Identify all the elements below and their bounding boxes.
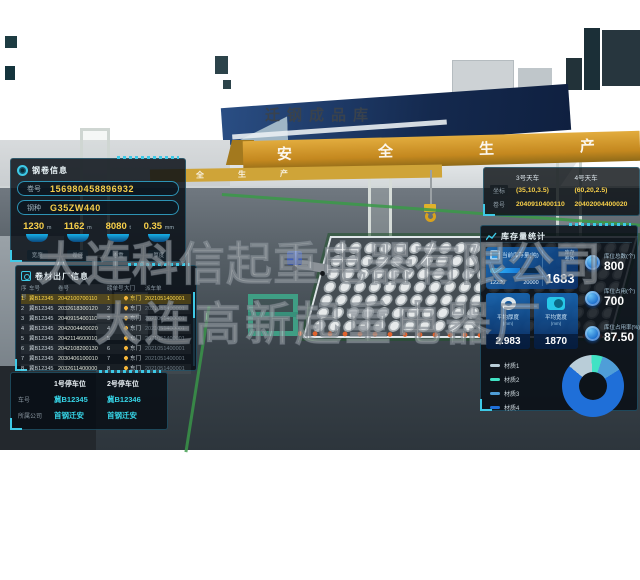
- avg-width-card[interactable]: 平均宽度 (mm) 1870: [534, 293, 578, 349]
- col-header: 车号: [29, 285, 58, 294]
- shipment-panel: 卷材出厂信息 序号 车号 卷号 磅单号 大门 派车单 1 冀B12345 204…: [15, 265, 197, 371]
- coil-icon: [17, 165, 28, 176]
- crane-4-coil: 20402004400020: [575, 201, 634, 208]
- legend-swatch: [490, 378, 500, 381]
- inventory-title: 库存量统计: [501, 231, 546, 242]
- table-row[interactable]: 1 冀B12345 2042100700110 1 东门 20210514000…: [21, 294, 191, 304]
- shipment-table: 序号 车号 卷号 磅单号 大门 派车单 1 冀B12345 2042100700…: [21, 285, 191, 374]
- legend-swatch: [490, 364, 500, 367]
- crane-hook-icon: [425, 211, 436, 222]
- avg-thickness-label: 平均厚度: [497, 313, 519, 321]
- legend-swatch: [490, 392, 500, 395]
- coil-stat-weight: 8080 t 卷重: [98, 221, 139, 262]
- stat-value: 8080: [106, 221, 127, 232]
- coil-label: 卷号: [490, 199, 508, 210]
- legend-swatch: [490, 406, 500, 409]
- table-row[interactable]: 4 冀B12345 2042004400020 4 东门 20210514000…: [21, 324, 191, 334]
- crane-3-name: 3号天车: [516, 172, 575, 182]
- crane-hook-cable: [430, 170, 432, 208]
- company-label: 所属公司: [18, 411, 54, 420]
- col-header: 大门: [124, 285, 145, 294]
- parking-spot-2-title: 2号停车位: [107, 379, 160, 389]
- gate-pin-icon: [123, 295, 129, 301]
- coil-number-label: 卷号: [27, 184, 41, 194]
- stock-icon: [490, 250, 500, 260]
- spot-1-plate: 冀B12345: [54, 394, 107, 405]
- table-row[interactable]: 3 冀B12345 2040915400110 3 东门 20210514000…: [21, 314, 191, 324]
- slot-sphere-icon: [585, 255, 600, 270]
- coord-label: 坐标: [490, 185, 508, 196]
- stock-current: 12230: [490, 280, 505, 286]
- coil-count-label-2: 卷数: [565, 256, 575, 262]
- coil-number-value: 156980458896932: [50, 184, 134, 194]
- coil-stats: 1230 m 宽度 1162 m 卷径 8080 t 卷重 0.35 mm: [17, 221, 179, 262]
- gauge-arc-icon: [67, 234, 89, 242]
- stat-label: 厚度: [148, 250, 169, 260]
- steel-grade-field[interactable]: 钢种 G35ZW440: [17, 200, 179, 215]
- truck-wheel: [320, 271, 325, 276]
- shipment-header: 卷材出厂信息: [21, 269, 191, 283]
- legend-item[interactable]: 材质3: [490, 389, 548, 398]
- spot-1-company: 首钢迁安: [54, 410, 107, 421]
- coil-info-panel: 钢卷信息 卷号 156980458896932 钢种 G35ZW440 1230…: [10, 158, 186, 262]
- coil-stat-width: 1230 m 宽度: [17, 221, 58, 262]
- crane-3-coord: (35,10,3.5): [516, 187, 575, 194]
- storage-rack-shelf: [248, 312, 298, 317]
- gauge-arc-icon: [26, 234, 48, 242]
- stock-progress-bar: [490, 268, 539, 273]
- steel-grade-label: 钢种: [27, 203, 41, 213]
- stock-max: 20000: [523, 280, 538, 286]
- stat-unit: t: [129, 225, 131, 231]
- shipment-table-header: 序号 车号 卷号 磅单号 大门 派车单: [21, 285, 191, 294]
- table-row[interactable]: 6 冀B12345 2042108200130 6 东门 20210514000…: [21, 344, 191, 354]
- material-donut: [562, 355, 624, 417]
- crane-4-name: 4号天车: [575, 172, 634, 182]
- gauge-arc-icon: [107, 234, 129, 242]
- building-block: [566, 58, 582, 90]
- col-header: 派车单: [145, 285, 189, 294]
- coil-stat-thickness: 0.35 mm 厚度: [139, 221, 180, 262]
- shipment-title: 卷材出厂信息: [35, 271, 89, 282]
- building-block: [602, 30, 640, 86]
- parking-spot-1-title: 1号停车位: [54, 379, 107, 389]
- coil-info-title: 钢卷信息: [32, 165, 68, 176]
- stat-value: 1230: [23, 221, 44, 232]
- avg-thickness-value: 2.983: [486, 334, 530, 349]
- stat-value: 0.35: [144, 221, 163, 232]
- gate-pin-icon: [123, 355, 129, 361]
- stat-unit: mm: [165, 225, 174, 231]
- stock-progress-fill: [490, 268, 520, 273]
- legend-item[interactable]: 材质2: [490, 375, 548, 384]
- coil-count-value: 1683: [546, 271, 575, 286]
- slot-sphere-icon: [585, 291, 600, 306]
- legend-label: 材质1: [504, 361, 519, 370]
- donut-hole: [579, 372, 607, 400]
- plate-label: 车号: [18, 395, 54, 404]
- avg-thickness-unit: (mm): [503, 321, 514, 326]
- avg-width-unit: (mm): [551, 321, 562, 326]
- crane-4-coord: (60,20,2.5): [575, 187, 634, 194]
- coil-info-header: 钢卷信息: [17, 163, 179, 177]
- stat-label: 宽度: [27, 250, 48, 260]
- legend-label: 材质4: [504, 403, 519, 412]
- shipment-rows: 1 冀B12345 2042100700110 1 东门 20210514000…: [21, 294, 191, 374]
- building-title: 迁钢成品库: [235, 104, 405, 125]
- slot-used-value: 700: [604, 295, 635, 308]
- scrollbar-thumb[interactable]: [193, 292, 195, 318]
- digital-twin-dashboard: 迁钢成品库 安全生产 全生产 钢: [0, 0, 640, 580]
- coil-number-field[interactable]: 卷号 156980458896932: [17, 181, 179, 196]
- legend: 材质1材质2材质3材质4: [486, 361, 548, 412]
- col-header: 序号: [21, 285, 29, 294]
- slot-used: 库位占用(个) 700: [585, 283, 640, 314]
- crane-status-panel: 3号天车 4号天车 坐标 (35,10,3.5) (60,20,2.5) 卷号 …: [483, 167, 640, 216]
- slot-total: 库位总数(个) 800: [585, 247, 640, 278]
- col-header: 磅单号: [107, 285, 124, 294]
- inventory-header: 库存量统计: [486, 230, 632, 243]
- steel-grade-value: G35ZW440: [50, 203, 101, 213]
- gate-pin-icon: [123, 325, 129, 331]
- slot-rate: 库位占用率(%) 87.50: [585, 318, 640, 349]
- coil-ring-icon: [501, 297, 516, 310]
- table-row[interactable]: 2 冀B12345 2032618300120 2 东门 20210514000…: [21, 304, 191, 314]
- stat-value: 1162: [64, 221, 85, 232]
- avg-width-value: 1870: [534, 334, 578, 349]
- avg-width-label: 平均宽度: [545, 313, 567, 321]
- spot-2-plate: 冀B12346: [107, 394, 160, 405]
- gate-pin-icon: [123, 345, 129, 351]
- coil-stat-diameter: 1162 m 卷径: [58, 221, 99, 262]
- truck-cab: [287, 251, 302, 265]
- building-block: [223, 80, 231, 89]
- stat-label: 卷重: [108, 250, 129, 260]
- stock-card[interactable]: 当前库存量(吨) 12230 20000 库存 卷数: [486, 247, 578, 289]
- legend-item[interactable]: 材质4: [490, 403, 548, 412]
- truck-wheel: [292, 266, 297, 271]
- stat-unit: m: [47, 225, 52, 231]
- table-scrollbar[interactable]: [193, 292, 195, 366]
- slot-total-value: 800: [604, 260, 635, 273]
- inventory-stats-panel: 库存量统计 当前库存量(吨) 12230 20000: [480, 225, 638, 411]
- line-chart-icon: [486, 232, 497, 241]
- document-search-icon: [21, 271, 31, 281]
- table-row[interactable]: 7 冀B12345 2030406100010 7 东门 20210514000…: [21, 354, 191, 364]
- legend-item[interactable]: 材质1: [490, 361, 548, 370]
- slot-sphere-icon: [585, 326, 600, 341]
- stock-label: 当前库存量(吨): [502, 251, 539, 259]
- stat-unit: m: [87, 225, 92, 231]
- coil-cylinder-icon: [547, 297, 565, 310]
- building-block: [215, 56, 228, 74]
- avg-thickness-card[interactable]: 平均厚度 (mm) 2.983: [486, 293, 530, 349]
- building-block: [5, 36, 17, 48]
- stat-label: 卷径: [67, 250, 88, 260]
- slot-rate-value: 87.50: [604, 331, 640, 344]
- gate-pin-icon: [123, 335, 129, 341]
- table-row[interactable]: 5 冀B12345 2042114600010 5 东门 20210514000…: [21, 334, 191, 344]
- gate-pin-icon: [123, 315, 129, 321]
- spot-2-company: 首钢迁安: [107, 410, 160, 421]
- crane-3-coil: 2040910400110: [516, 201, 575, 208]
- legend-label: 材质2: [504, 375, 519, 384]
- legend-label: 材质3: [504, 389, 519, 398]
- gate-pin-icon: [123, 305, 129, 311]
- gauge-arc-icon: [148, 234, 170, 242]
- col-header: 卷号: [58, 285, 107, 294]
- building-block: [584, 28, 600, 90]
- parking-panel: 1号停车位 2号停车位 车号 冀B12345 冀B12346 所属公司 首钢迁安…: [10, 372, 168, 430]
- building-block: [5, 66, 15, 80]
